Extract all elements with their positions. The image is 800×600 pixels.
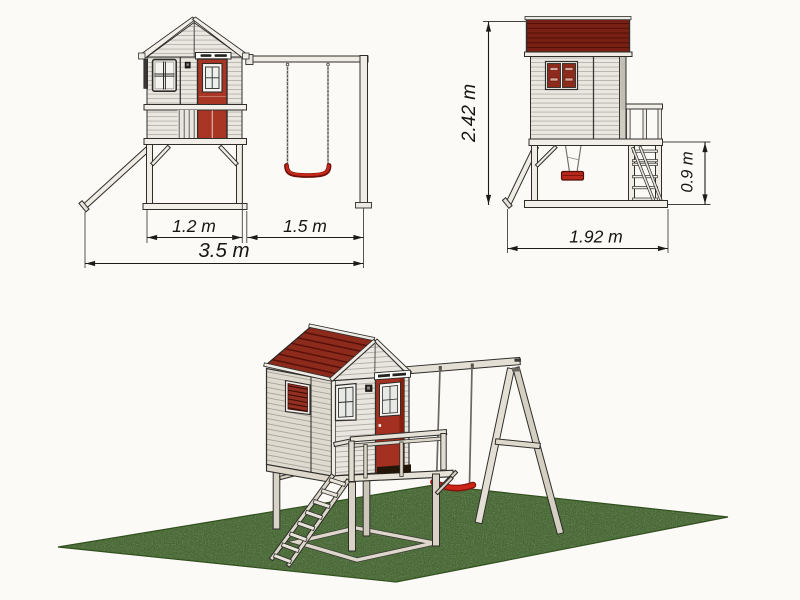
- svg-text:2.42 m: 2.42 m: [459, 84, 480, 143]
- svg-text:1.92 m: 1.92 m: [569, 227, 623, 247]
- svg-text:0.9 m: 0.9 m: [679, 151, 697, 192]
- svg-text:3.5 m: 3.5 m: [198, 239, 249, 262]
- svg-text:1.2 m: 1.2 m: [172, 216, 216, 236]
- svg-text:1.5 m: 1.5 m: [283, 216, 327, 236]
